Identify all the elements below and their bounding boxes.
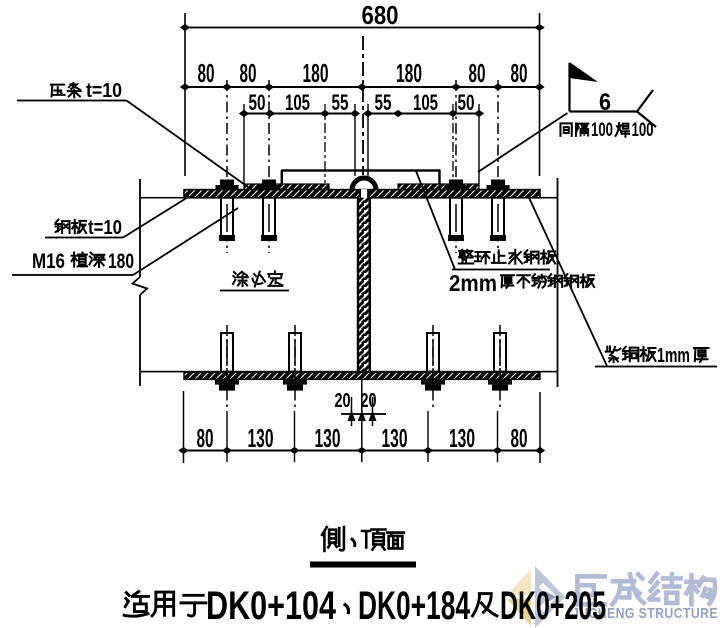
svg-text:80: 80	[198, 58, 215, 88]
svg-text:t=10: t=10	[88, 217, 122, 239]
svg-text:80: 80	[469, 58, 486, 88]
svg-text:20: 20	[361, 390, 377, 412]
svg-text:80: 80	[240, 58, 257, 88]
svg-text:100: 100	[591, 120, 613, 141]
svg-text:50: 50	[249, 90, 266, 115]
svg-text:130: 130	[449, 423, 475, 453]
svg-text:JUCHENG STRUCTURE: JUCHENG STRUCTURE	[572, 605, 718, 622]
svg-text:20: 20	[335, 390, 351, 412]
svg-text:1mm: 1mm	[657, 345, 690, 367]
svg-text:105: 105	[413, 90, 438, 115]
svg-text:130: 130	[248, 423, 274, 453]
svg-text:2mm: 2mm	[449, 270, 497, 296]
svg-text:80: 80	[511, 423, 528, 453]
svg-text:50: 50	[458, 90, 475, 115]
svg-text:M16: M16	[32, 250, 65, 273]
svg-text:DK0+184: DK0+184	[358, 584, 470, 628]
svg-text:t=10: t=10	[86, 80, 122, 102]
svg-text:55: 55	[375, 90, 392, 115]
svg-text:80: 80	[197, 423, 214, 453]
svg-text:130: 130	[315, 423, 341, 453]
svg-text:DK0+104: DK0+104	[206, 584, 337, 628]
svg-text:130: 130	[382, 423, 408, 453]
svg-text:105: 105	[285, 90, 310, 115]
svg-text:180: 180	[108, 250, 134, 273]
svg-text:680: 680	[362, 0, 399, 30]
svg-text:55: 55	[332, 90, 349, 115]
svg-text:6: 6	[599, 89, 611, 116]
svg-text:100: 100	[632, 120, 654, 141]
svg-text:180: 180	[303, 58, 329, 88]
svg-text:180: 180	[396, 58, 422, 88]
svg-text:80: 80	[511, 58, 528, 88]
